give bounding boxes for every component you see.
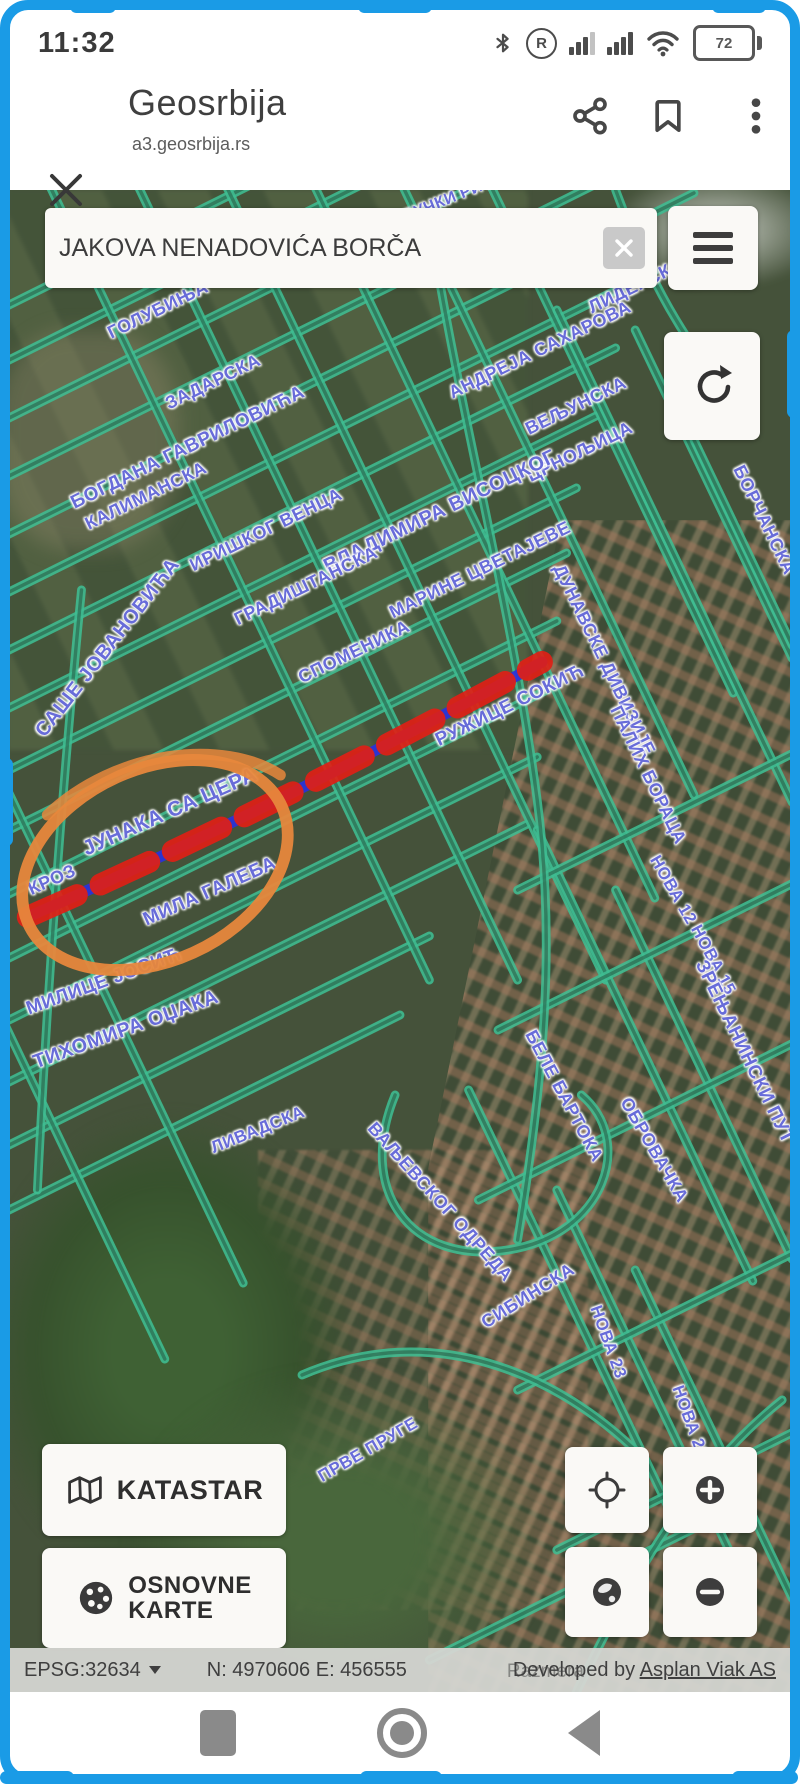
phone-screen: 11:32 R 72 bbox=[0, 0, 800, 1784]
page-url: a3.geosrbija.rs bbox=[132, 134, 250, 155]
recents-icon[interactable] bbox=[200, 1710, 236, 1756]
chevron-down-icon bbox=[149, 1666, 161, 1674]
developer-credit: Razmera Developed by Asplan Viak AS bbox=[513, 1659, 776, 1682]
zoom-in-icon bbox=[688, 1468, 732, 1512]
search-input[interactable] bbox=[59, 234, 603, 263]
folded-map-icon bbox=[65, 1473, 105, 1507]
status-icons: R 72 bbox=[492, 25, 762, 61]
refresh-button[interactable] bbox=[664, 332, 760, 440]
clock: 11:32 bbox=[38, 27, 116, 60]
wifi-icon bbox=[645, 28, 681, 58]
dotted-globe-icon bbox=[76, 1578, 116, 1618]
refresh-icon bbox=[689, 363, 735, 409]
globe-view-button[interactable] bbox=[565, 1547, 649, 1637]
close-icon[interactable] bbox=[44, 168, 88, 212]
bluetooth-icon bbox=[492, 28, 514, 58]
hamburger-icon bbox=[693, 232, 733, 264]
back-icon[interactable] bbox=[568, 1710, 600, 1756]
browser-header: Geosrbija a3.geosrbija.rs bbox=[10, 76, 790, 190]
cell-signal-icon-2 bbox=[607, 31, 633, 55]
share-icon[interactable] bbox=[570, 96, 610, 136]
search-box bbox=[45, 208, 657, 288]
page-title: Geosrbija bbox=[128, 82, 287, 124]
android-nav-bar bbox=[10, 1692, 790, 1774]
globe-icon bbox=[585, 1570, 629, 1614]
osnovne-karte-button[interactable]: OSNOVNE KARTE bbox=[42, 1548, 286, 1648]
layers-menu-button[interactable] bbox=[668, 206, 758, 290]
cell-signal-icon bbox=[569, 31, 595, 55]
battery-icon: 72 bbox=[693, 25, 762, 61]
developer-link[interactable]: Asplan Viak AS bbox=[640, 1659, 776, 1681]
osnovne-karte-label: OSNOVNE KARTE bbox=[128, 1573, 252, 1623]
kebab-menu-icon[interactable] bbox=[736, 96, 776, 136]
katastar-button[interactable]: KATASTAR bbox=[42, 1444, 286, 1536]
katastar-label: KATASTAR bbox=[117, 1475, 263, 1506]
battery-percent: 72 bbox=[716, 35, 733, 52]
scale-overlay-text: Razmera bbox=[507, 1661, 584, 1683]
roaming-icon: R bbox=[526, 28, 557, 59]
bookmark-icon[interactable] bbox=[648, 96, 688, 136]
cursor-coordinates: N: 4970606 E: 456555 bbox=[207, 1659, 407, 1682]
status-bar: 11:32 R 72 bbox=[10, 10, 790, 76]
zoom-in-button[interactable] bbox=[663, 1447, 757, 1533]
map-status-bar: EPSG:32634 N: 4970606 E: 456555 Razmera … bbox=[8, 1648, 792, 1692]
epsg-code: EPSG:32634 bbox=[24, 1659, 141, 1682]
epsg-selector[interactable]: EPSG:32634 bbox=[24, 1659, 161, 1682]
zoom-out-button[interactable] bbox=[663, 1547, 757, 1637]
home-icon[interactable] bbox=[377, 1708, 427, 1758]
locate-button[interactable] bbox=[565, 1447, 649, 1533]
zoom-out-icon bbox=[688, 1570, 732, 1614]
clear-icon[interactable] bbox=[603, 227, 645, 269]
locate-icon bbox=[585, 1468, 629, 1512]
